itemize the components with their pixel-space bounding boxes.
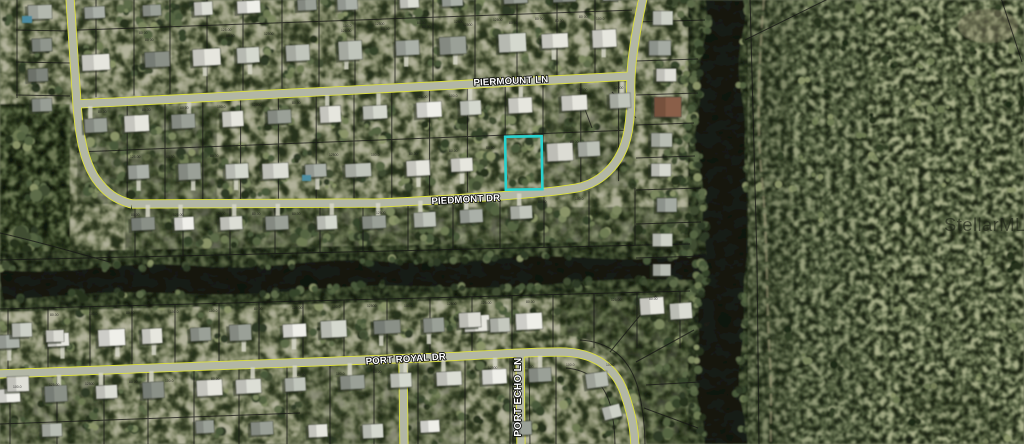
svg-text:80 00: 80 00 xyxy=(509,21,518,25)
svg-text:80 00: 80 00 xyxy=(166,155,175,159)
svg-text:100.0: 100.0 xyxy=(209,309,218,313)
svg-text:80.00: 80.00 xyxy=(381,27,390,31)
svg-text:80.00: 80.00 xyxy=(409,152,418,156)
svg-text:80 00: 80 00 xyxy=(535,17,544,21)
svg-text:80.00: 80.00 xyxy=(131,213,140,217)
svg-text:80.00: 80.00 xyxy=(525,365,534,369)
svg-text:12500: 12500 xyxy=(614,86,624,90)
svg-text:80.00: 80.00 xyxy=(649,297,658,301)
svg-text:125.00: 125.00 xyxy=(341,29,351,33)
svg-text:80 00: 80 00 xyxy=(486,146,495,150)
svg-text:100.0: 100.0 xyxy=(332,305,341,309)
svg-text:100.0: 100.0 xyxy=(596,17,605,21)
svg-text:80.00: 80.00 xyxy=(211,377,220,381)
svg-text:80 00: 80 00 xyxy=(579,15,588,19)
svg-text:80 00: 80 00 xyxy=(139,31,148,35)
svg-text:100.0: 100.0 xyxy=(566,363,575,367)
svg-text:125.00: 125.00 xyxy=(221,28,231,32)
svg-text:80.00: 80.00 xyxy=(292,212,301,216)
svg-text:80.00: 80.00 xyxy=(126,311,135,315)
svg-text:80.00: 80.00 xyxy=(210,154,219,158)
svg-text:80.00: 80.00 xyxy=(142,108,151,112)
svg-text:80.00: 80.00 xyxy=(98,110,107,114)
svg-text:125.00: 125.00 xyxy=(611,298,621,302)
svg-text:125.00: 125.00 xyxy=(173,213,183,217)
svg-text:100.0: 100.0 xyxy=(449,94,458,98)
svg-text:100.0: 100.0 xyxy=(336,372,345,376)
svg-text:125.00: 125.00 xyxy=(292,306,302,310)
svg-text:100.0: 100.0 xyxy=(371,153,380,157)
svg-text:12500: 12500 xyxy=(216,212,226,216)
svg-text:100.0: 100.0 xyxy=(165,379,174,383)
svg-text:80 00: 80 00 xyxy=(254,307,263,311)
svg-text:80 00: 80 00 xyxy=(570,140,579,144)
svg-text:12500: 12500 xyxy=(488,366,498,370)
svg-text:100.0: 100.0 xyxy=(13,385,22,389)
svg-text:80.00: 80.00 xyxy=(252,212,261,216)
svg-text:100.0: 100.0 xyxy=(575,197,584,201)
svg-text:125.00: 125.00 xyxy=(481,301,491,305)
svg-text:80.00: 80.00 xyxy=(449,149,458,153)
svg-text:100.0: 100.0 xyxy=(343,24,352,28)
svg-text:80 00: 80 00 xyxy=(180,106,189,110)
svg-text:12500: 12500 xyxy=(367,304,377,308)
svg-text:12500: 12500 xyxy=(252,103,262,107)
svg-text:12500: 12500 xyxy=(85,382,95,386)
svg-text:12500: 12500 xyxy=(447,302,457,306)
svg-text:80 00: 80 00 xyxy=(226,34,235,38)
svg-text:12500: 12500 xyxy=(375,22,385,26)
svg-text:PORT ECHO LN: PORT ECHO LN xyxy=(513,357,524,436)
svg-text:80.00: 80.00 xyxy=(538,200,547,204)
svg-text:125.00: 125.00 xyxy=(417,95,427,99)
svg-text:125.00: 125.00 xyxy=(130,155,140,159)
svg-text:12500: 12500 xyxy=(329,153,339,157)
svg-text:100.0: 100.0 xyxy=(217,105,226,109)
svg-text:100.0: 100.0 xyxy=(606,363,615,367)
svg-text:12500: 12500 xyxy=(376,211,386,215)
svg-text:125.00: 125.00 xyxy=(49,383,59,387)
svg-text:80.00: 80.00 xyxy=(526,300,535,304)
svg-text:80.00: 80.00 xyxy=(297,373,306,377)
svg-text:StellarMLS: StellarMLS xyxy=(944,214,1024,235)
svg-text:12500: 12500 xyxy=(463,23,473,27)
svg-text:12500: 12500 xyxy=(264,32,274,36)
svg-text:80.00: 80.00 xyxy=(50,313,59,317)
svg-text:80 00: 80 00 xyxy=(129,380,138,384)
svg-text:80.00: 80.00 xyxy=(555,19,564,23)
svg-text:100.0: 100.0 xyxy=(89,312,98,316)
svg-text:80.00: 80.00 xyxy=(373,370,382,374)
svg-text:80 00: 80 00 xyxy=(145,38,154,42)
svg-text:125.00: 125.00 xyxy=(577,88,587,92)
svg-text:12500: 12500 xyxy=(493,18,503,22)
svg-text:80.00: 80.00 xyxy=(422,25,431,29)
svg-text:100.0: 100.0 xyxy=(404,304,413,308)
svg-text:80.00: 80.00 xyxy=(292,101,301,105)
svg-text:100.0: 100.0 xyxy=(170,310,179,314)
